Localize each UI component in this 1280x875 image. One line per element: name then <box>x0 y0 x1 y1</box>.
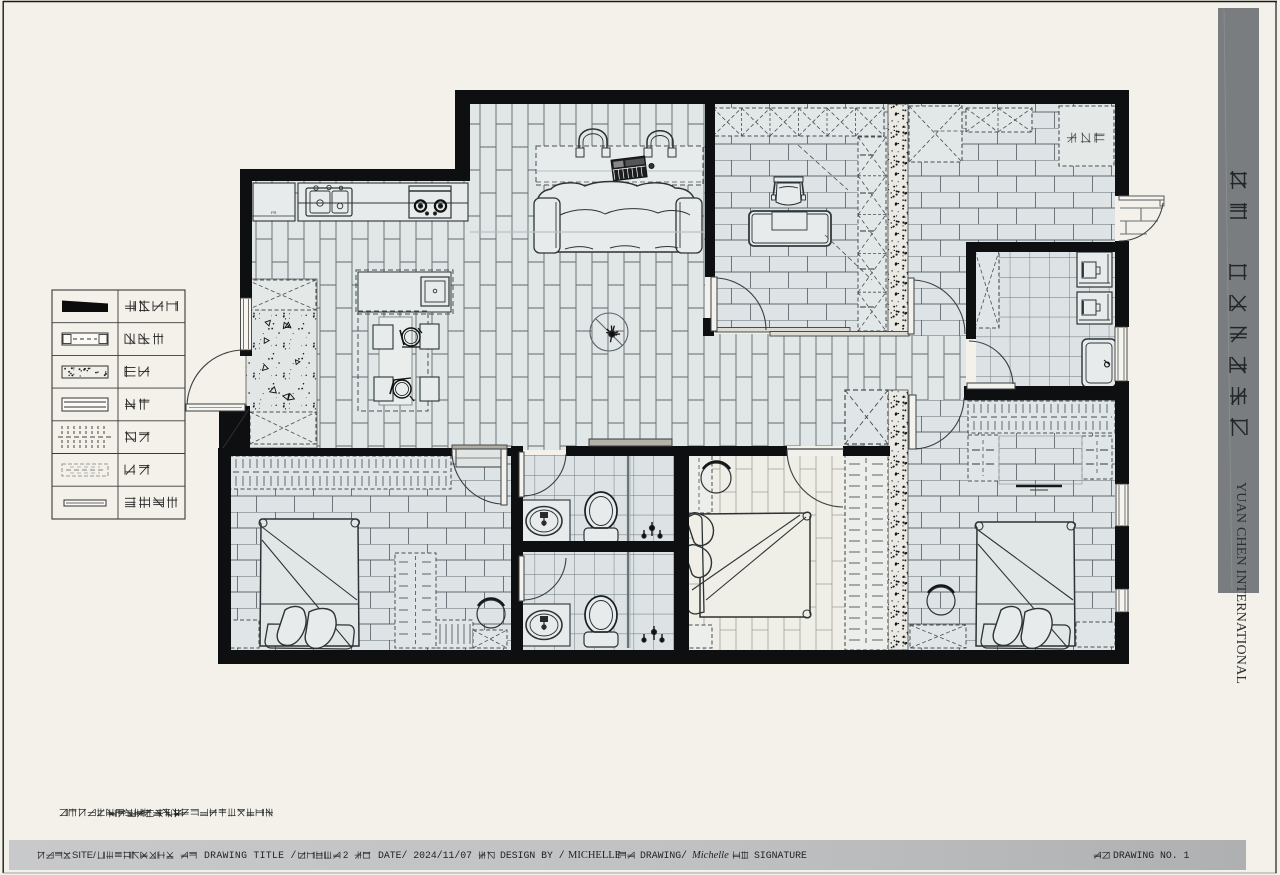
svg-text:FR: FR <box>271 210 276 215</box>
svg-text:DRAWING NO. 1: DRAWING NO. 1 <box>1113 850 1190 861</box>
svg-text:DESIGN BY /: DESIGN BY / <box>500 850 565 861</box>
svg-text:Michelle: Michelle <box>691 850 729 861</box>
svg-text:DRAWING/: DRAWING/ <box>640 850 687 861</box>
svg-text:SIGNATURE: SIGNATURE <box>754 850 807 861</box>
svg-text:YUAN CHEN INTERNATIONAL: YUAN CHEN INTERNATIONAL <box>1233 482 1248 684</box>
svg-text:SITE/: SITE/ <box>72 850 96 861</box>
svg-text:MICHELLE: MICHELLE <box>568 850 621 861</box>
svg-text:2: 2 <box>343 850 348 861</box>
svg-text:DRAWING TITLE /: DRAWING TITLE / <box>204 850 297 861</box>
svg-text:DATE/ 2024/11/07: DATE/ 2024/11/07 <box>378 850 472 861</box>
